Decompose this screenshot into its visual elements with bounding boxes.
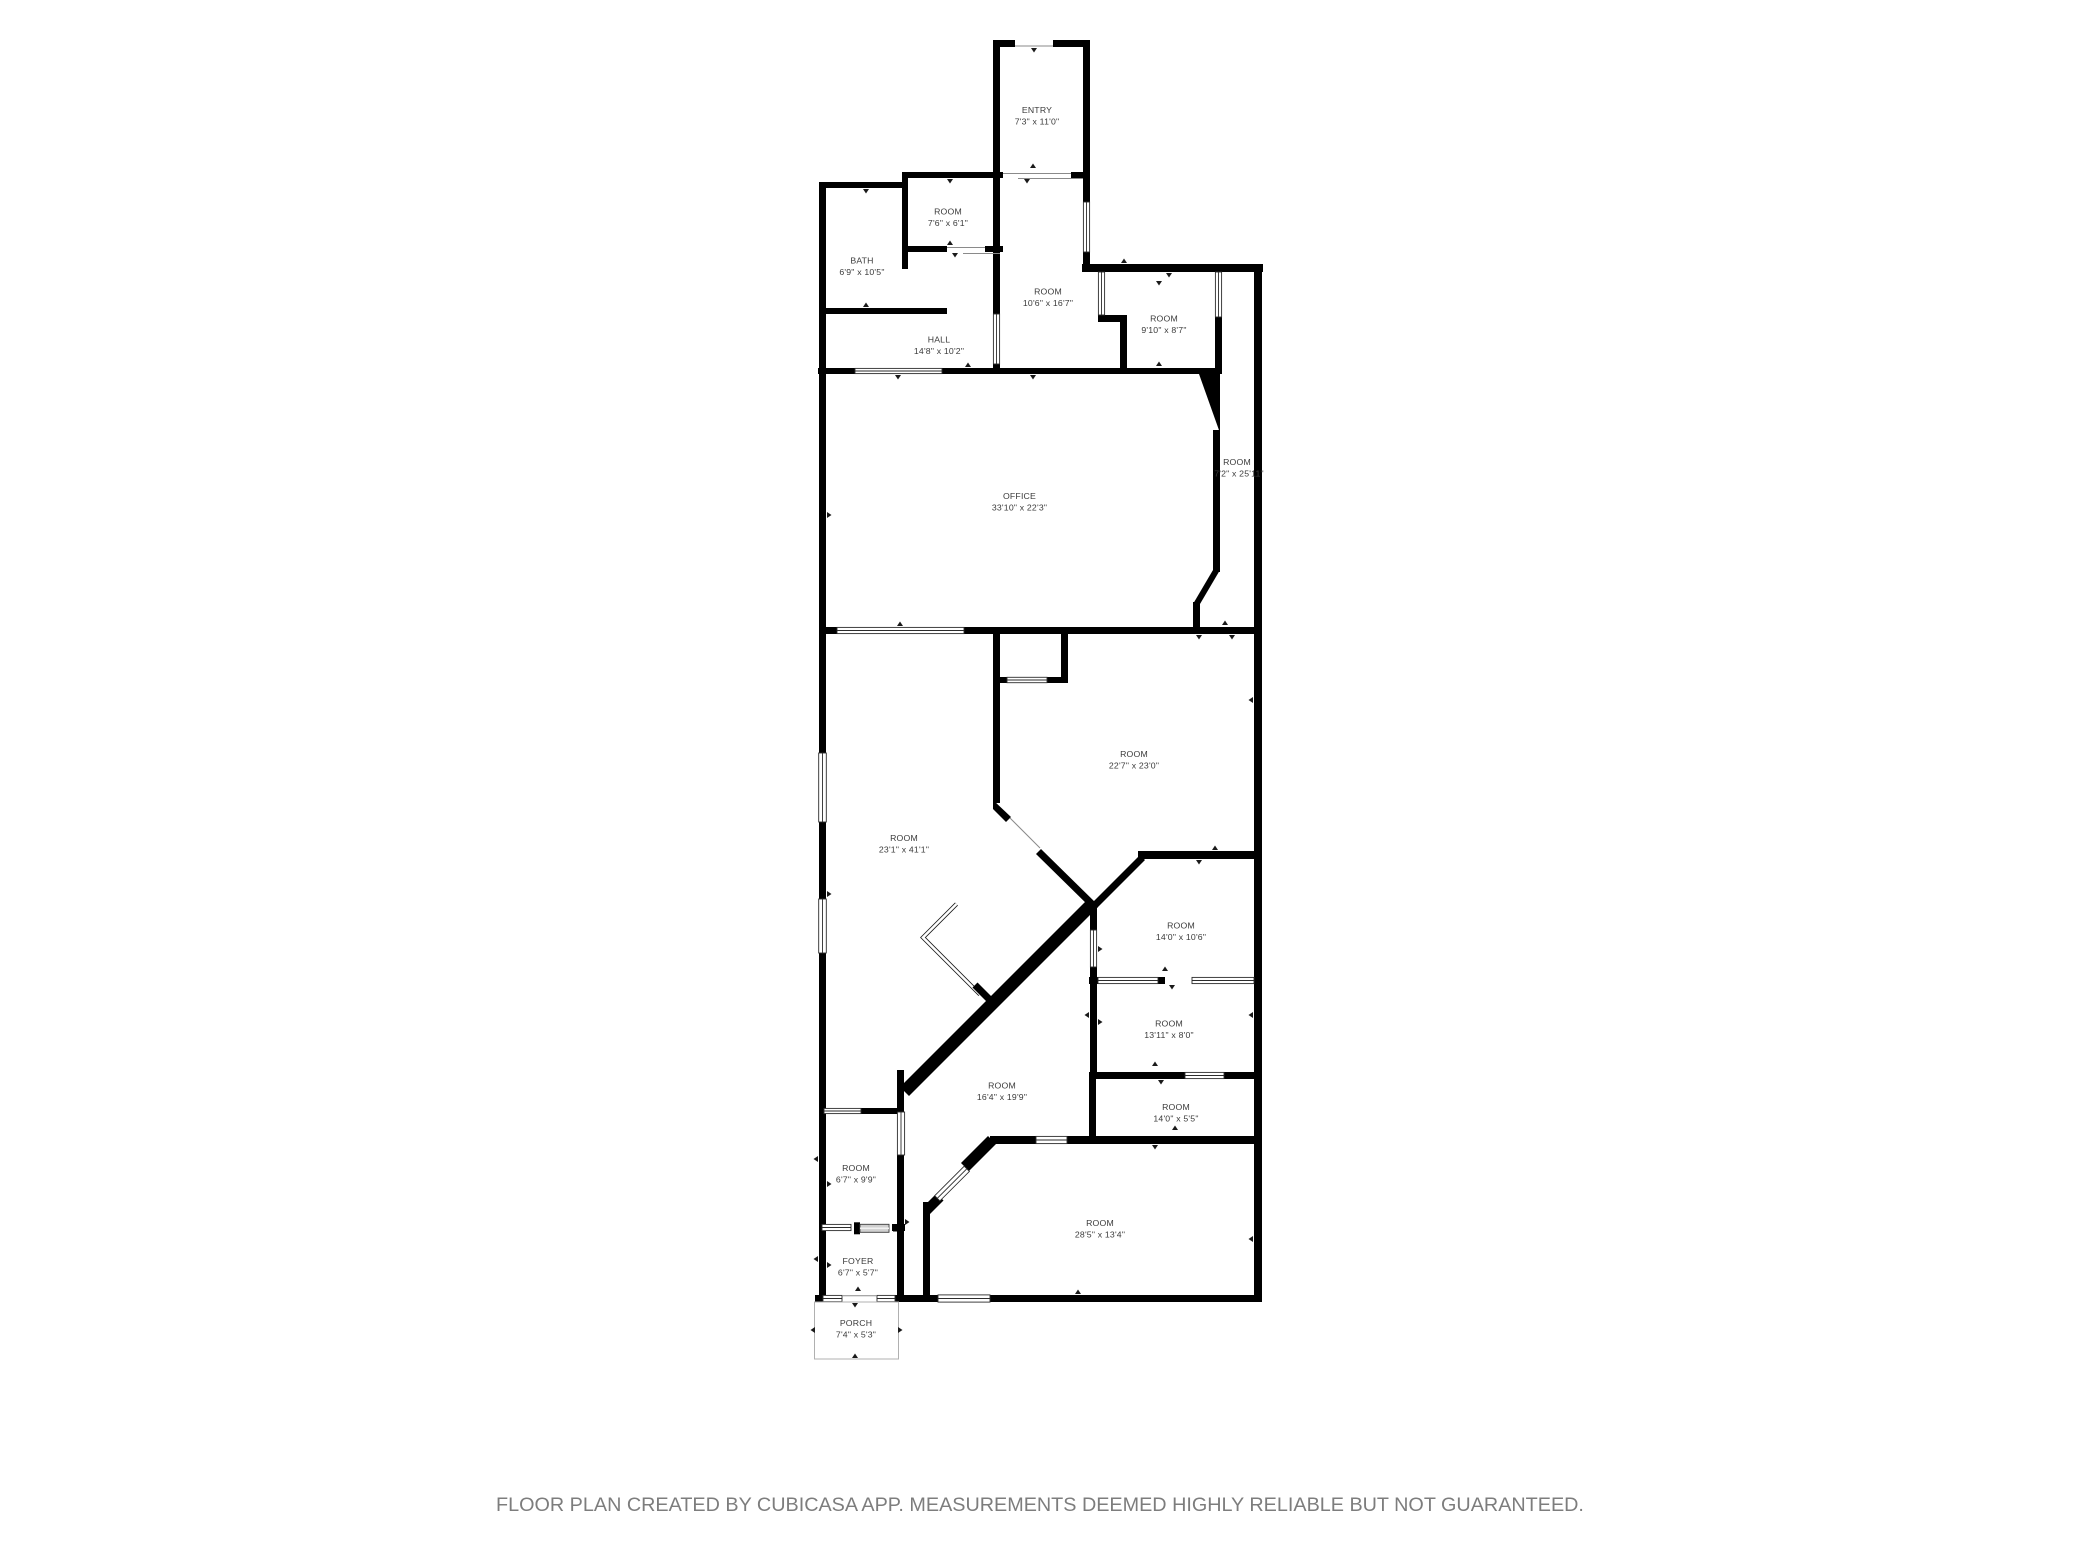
svg-text:ROOM: ROOM [1150, 314, 1178, 324]
svg-text:14'0" x 5'5": 14'0" x 5'5" [1153, 1114, 1198, 1124]
svg-text:22'7" x 23'0": 22'7" x 23'0" [1109, 761, 1159, 771]
svg-text:14'8" x 10'2": 14'8" x 10'2" [914, 346, 964, 356]
svg-text:6'7" x 9'9": 6'7" x 9'9" [836, 1175, 876, 1185]
svg-text:ENTRY: ENTRY [1022, 105, 1052, 115]
svg-text:6'9" x 10'5": 6'9" x 10'5" [839, 267, 884, 277]
svg-text:7'6" x 6'1": 7'6" x 6'1" [928, 218, 968, 228]
svg-text:OFFICE: OFFICE [1003, 491, 1036, 501]
svg-text:ROOM: ROOM [1034, 287, 1062, 297]
svg-text:7'3" x 11'0": 7'3" x 11'0" [1015, 117, 1060, 127]
svg-text:6'7" x 5'7": 6'7" x 5'7" [838, 1268, 878, 1278]
svg-text:ROOM: ROOM [1120, 749, 1148, 759]
svg-text:FLOOR PLAN CREATED BY CUBICASA: FLOOR PLAN CREATED BY CUBICASA APP. MEAS… [496, 1494, 1584, 1516]
svg-text:ROOM: ROOM [934, 207, 962, 217]
svg-text:7'4" x 5'3": 7'4" x 5'3" [836, 1330, 876, 1340]
svg-text:33'10" x 22'3": 33'10" x 22'3" [992, 503, 1047, 513]
svg-text:9'10" x 8'7": 9'10" x 8'7" [1141, 325, 1186, 335]
svg-text:ROOM: ROOM [1223, 457, 1251, 467]
svg-text:ROOM: ROOM [890, 833, 918, 843]
svg-text:ROOM: ROOM [1167, 921, 1195, 931]
svg-text:ROOM: ROOM [1162, 1102, 1190, 1112]
svg-text:HALL: HALL [928, 335, 951, 345]
svg-text:10'6" x 16'7": 10'6" x 16'7" [1023, 298, 1073, 308]
svg-text:ROOM: ROOM [1086, 1218, 1114, 1228]
svg-text:23'1" x 41'1": 23'1" x 41'1" [879, 845, 929, 855]
svg-text:BATH: BATH [850, 256, 873, 266]
svg-text:PORCH: PORCH [840, 1318, 872, 1328]
svg-text:28'5" x 13'4": 28'5" x 13'4" [1075, 1230, 1125, 1240]
svg-text:ROOM: ROOM [842, 1163, 870, 1173]
svg-text:ROOM: ROOM [988, 1081, 1016, 1091]
svg-text:7'2" x 25'11": 7'2" x 25'11" [1214, 469, 1264, 479]
svg-text:ROOM: ROOM [1155, 1019, 1183, 1029]
svg-text:FOYER: FOYER [843, 1256, 874, 1266]
svg-text:16'4" x 19'9": 16'4" x 19'9" [977, 1092, 1027, 1102]
svg-text:13'11" x 8'0": 13'11" x 8'0" [1144, 1030, 1194, 1040]
svg-text:14'0" x 10'6": 14'0" x 10'6" [1156, 932, 1206, 942]
